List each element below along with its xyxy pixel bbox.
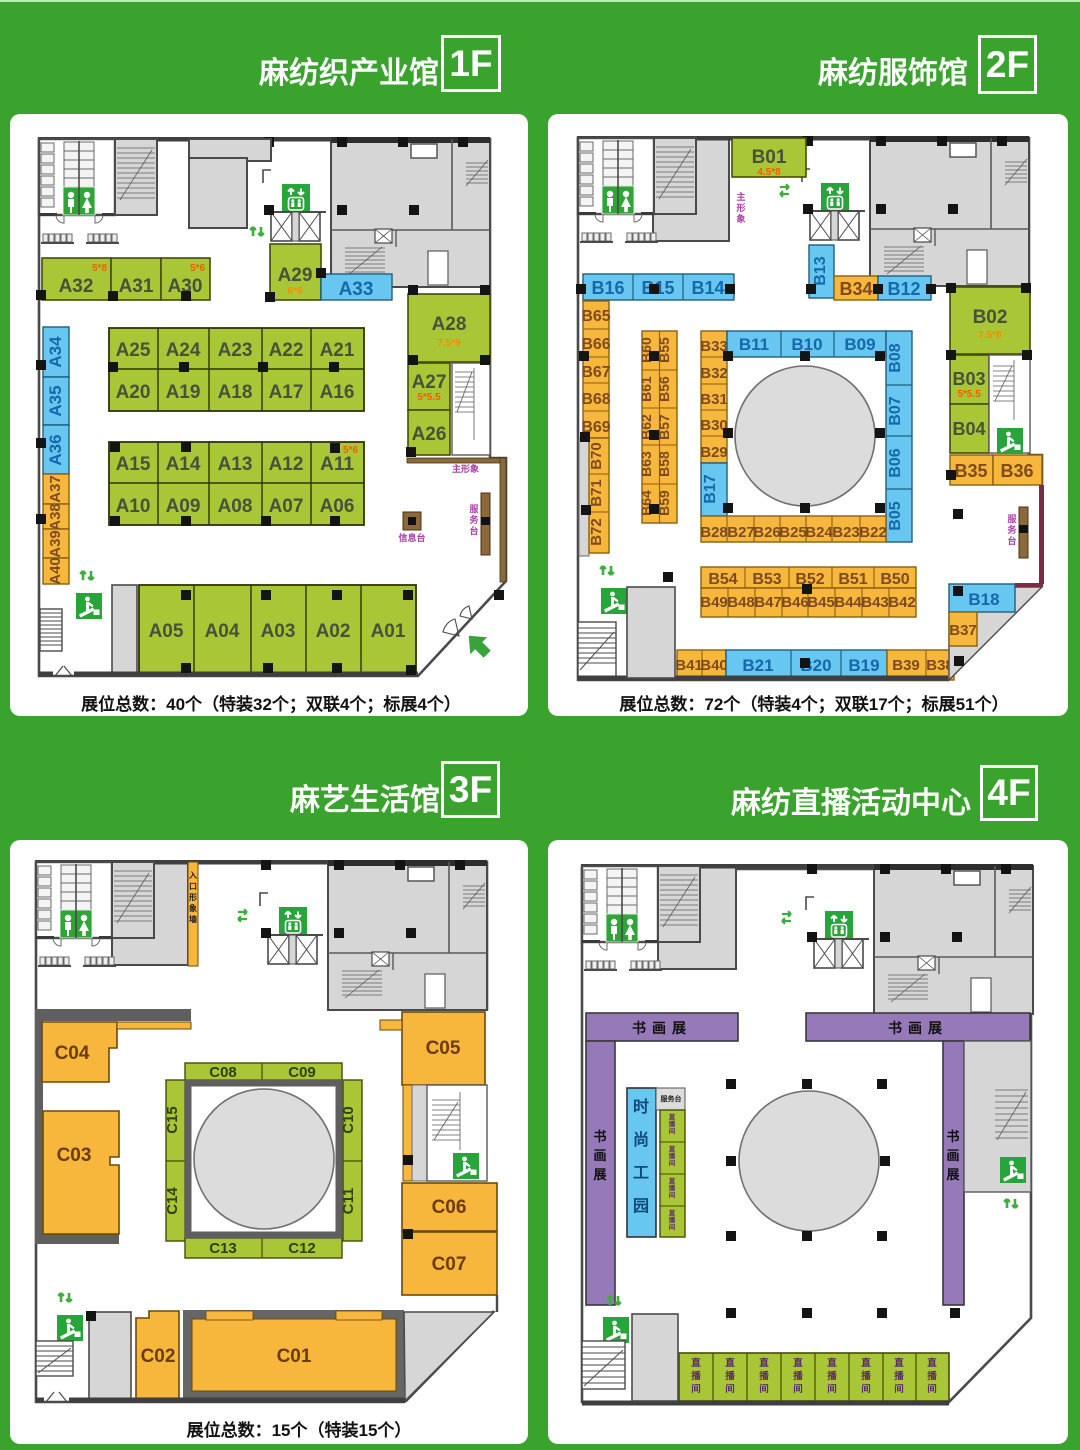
svg-text:A21: A21 <box>320 340 355 361</box>
svg-text:A10: A10 <box>116 496 151 517</box>
svg-text:6*6: 6*6 <box>287 286 302 297</box>
svg-text:间: 间 <box>669 1126 676 1135</box>
svg-text:时: 时 <box>633 1098 649 1116</box>
svg-text:B50: B50 <box>880 571 909 588</box>
svg-text:A25: A25 <box>116 340 151 361</box>
svg-text:A02: A02 <box>316 621 351 642</box>
svg-text:B63: B63 <box>638 451 654 477</box>
svg-text:B25: B25 <box>779 524 807 541</box>
svg-text:C04: C04 <box>55 1043 90 1064</box>
svg-text:A19: A19 <box>166 382 201 403</box>
svg-text:园: 园 <box>633 1197 649 1215</box>
svg-text:播: 播 <box>759 1370 769 1382</box>
svg-text:间: 间 <box>827 1383 837 1395</box>
svg-text:B28: B28 <box>700 524 728 541</box>
svg-text:A32: A32 <box>59 276 94 297</box>
svg-text:展位总数：40个（特装32个；双联4个；标展4个）: 展位总数：40个（特装32个；双联4个；标展4个） <box>81 694 461 714</box>
svg-text:A39: A39 <box>47 530 64 558</box>
svg-text:B48: B48 <box>727 594 755 611</box>
svg-text:A07: A07 <box>269 496 304 517</box>
svg-text:播: 播 <box>669 1183 676 1192</box>
svg-text:C02: C02 <box>141 1346 176 1367</box>
svg-text:C12: C12 <box>288 1240 316 1257</box>
svg-text:C06: C06 <box>432 1197 467 1218</box>
svg-text:B49: B49 <box>700 594 728 611</box>
svg-text:B36: B36 <box>1000 461 1033 481</box>
svg-text:服务台: 服务台 <box>661 1094 682 1103</box>
svg-text:B65: B65 <box>581 308 610 325</box>
svg-text:间: 间 <box>669 1190 676 1199</box>
svg-text:A22: A22 <box>269 340 304 361</box>
svg-text:B43: B43 <box>861 594 889 611</box>
svg-text:直: 直 <box>669 1208 676 1217</box>
svg-text:B72: B72 <box>588 518 605 546</box>
svg-text:C15: C15 <box>164 1106 181 1134</box>
svg-text:A03: A03 <box>261 621 296 642</box>
svg-text:B01: B01 <box>752 147 787 168</box>
svg-text:B71: B71 <box>588 479 605 507</box>
svg-text:B37: B37 <box>949 622 977 639</box>
svg-text:C13: C13 <box>209 1240 237 1257</box>
svg-text:5*5.5: 5*5.5 <box>417 392 441 403</box>
svg-text:A11: A11 <box>320 454 354 475</box>
svg-text:播: 播 <box>669 1119 676 1128</box>
svg-text:C10: C10 <box>340 1106 357 1134</box>
svg-text:A05: A05 <box>149 621 184 642</box>
svg-text:B02: B02 <box>973 307 1008 328</box>
svg-text:展: 展 <box>946 1167 960 1182</box>
svg-text:间: 间 <box>691 1383 701 1395</box>
svg-text:播: 播 <box>827 1370 837 1382</box>
svg-text:B27: B27 <box>727 524 755 541</box>
svg-text:A16: A16 <box>320 382 355 403</box>
svg-text:B53: B53 <box>752 571 781 588</box>
svg-text:墙: 墙 <box>189 914 197 924</box>
svg-text:形: 形 <box>189 892 197 902</box>
svg-text:B34: B34 <box>839 279 872 299</box>
svg-text:象: 象 <box>736 213 745 224</box>
svg-text:A29: A29 <box>278 265 313 286</box>
svg-text:B14: B14 <box>691 278 724 298</box>
svg-text:直: 直 <box>691 1357 701 1369</box>
svg-text:B07: B07 <box>887 396 904 425</box>
svg-text:工: 工 <box>633 1165 649 1182</box>
svg-text:B29: B29 <box>700 444 728 461</box>
svg-text:尚: 尚 <box>633 1130 649 1149</box>
svg-text:C11: C11 <box>340 1188 357 1215</box>
svg-text:A01: A01 <box>371 621 406 642</box>
svg-text:B12: B12 <box>887 279 920 299</box>
svg-text:B04: B04 <box>952 419 985 439</box>
svg-text:播: 播 <box>669 1151 676 1160</box>
svg-text:B41: B41 <box>675 657 703 674</box>
svg-text:间: 间 <box>927 1383 937 1395</box>
svg-text:直: 直 <box>861 1357 871 1369</box>
svg-text:B46: B46 <box>781 594 809 611</box>
svg-text:直: 直 <box>669 1144 676 1153</box>
svg-text:A13: A13 <box>218 454 253 475</box>
svg-text:A27: A27 <box>412 372 447 393</box>
svg-text:A31: A31 <box>119 276 154 297</box>
svg-text:A17: A17 <box>269 382 304 403</box>
svg-text:B08: B08 <box>887 343 904 372</box>
svg-text:B51: B51 <box>838 571 867 588</box>
svg-text:B67: B67 <box>581 364 610 381</box>
svg-text:信息台: 信息台 <box>398 532 425 543</box>
svg-text:播: 播 <box>725 1370 735 1382</box>
svg-text:B44: B44 <box>834 594 862 611</box>
svg-text:形: 形 <box>736 202 745 213</box>
svg-text:B45: B45 <box>807 594 835 611</box>
svg-text:A24: A24 <box>166 340 201 361</box>
svg-text:服: 服 <box>469 504 479 514</box>
svg-text:A33: A33 <box>339 279 374 300</box>
svg-text:间: 间 <box>861 1383 871 1395</box>
svg-text:B21: B21 <box>742 656 773 675</box>
svg-text:B06: B06 <box>887 448 904 477</box>
svg-text:A04: A04 <box>205 621 240 642</box>
svg-text:播: 播 <box>861 1370 871 1382</box>
svg-text:B13: B13 <box>812 256 829 285</box>
svg-text:间: 间 <box>793 1383 803 1395</box>
svg-text:B18: B18 <box>968 590 999 609</box>
svg-text:台: 台 <box>469 525 478 536</box>
svg-text:播: 播 <box>793 1370 803 1382</box>
svg-text:A34: A34 <box>46 336 65 368</box>
svg-text:A28: A28 <box>432 314 467 335</box>
svg-text:务: 务 <box>1007 524 1017 535</box>
svg-text:C01: C01 <box>277 1346 312 1367</box>
svg-text:B61: B61 <box>638 376 654 402</box>
svg-text:展位总数：15个（特装15个）: 展位总数：15个（特装15个） <box>187 1420 412 1440</box>
svg-text:B70: B70 <box>588 442 605 470</box>
svg-text:A23: A23 <box>218 340 253 361</box>
svg-text:间: 间 <box>725 1383 735 1395</box>
svg-text:主形象: 主形象 <box>452 463 479 474</box>
svg-text:B05: B05 <box>887 501 904 530</box>
svg-text:A12: A12 <box>269 454 304 475</box>
svg-text:7.5*9: 7.5*9 <box>437 338 461 349</box>
svg-text:B68: B68 <box>581 391 610 408</box>
svg-text:播: 播 <box>691 1370 701 1382</box>
svg-text:主: 主 <box>736 191 745 202</box>
svg-text:B11: B11 <box>739 335 769 354</box>
svg-text:A38: A38 <box>47 503 64 531</box>
svg-text:B24: B24 <box>805 524 833 541</box>
svg-text:入: 入 <box>188 871 197 880</box>
svg-text:间: 间 <box>759 1383 769 1395</box>
svg-text:间: 间 <box>894 1383 904 1395</box>
svg-text:5*8: 5*8 <box>92 263 107 274</box>
svg-text:展位总数：72个（特装4个；双联17个；标展51个）: 展位总数：72个（特装4个；双联17个；标展51个） <box>619 694 1008 714</box>
svg-text:5*6: 5*6 <box>343 445 358 456</box>
svg-text:5*5.5: 5*5.5 <box>957 389 981 400</box>
svg-text:间: 间 <box>669 1158 676 1167</box>
svg-text:A09: A09 <box>166 496 201 517</box>
svg-text:A40: A40 <box>47 557 64 585</box>
svg-text:A14: A14 <box>166 454 201 475</box>
svg-text:B56: B56 <box>656 376 672 402</box>
svg-text:书: 书 <box>593 1129 606 1144</box>
svg-text:书: 书 <box>946 1129 959 1144</box>
svg-text:直: 直 <box>793 1357 803 1369</box>
svg-text:C07: C07 <box>432 1254 467 1275</box>
svg-text:口: 口 <box>189 882 197 891</box>
svg-text:C05: C05 <box>426 1038 461 1059</box>
svg-text:B09: B09 <box>844 335 875 354</box>
svg-text:B47: B47 <box>754 594 782 611</box>
svg-text:B31: B31 <box>700 391 728 408</box>
svg-text:A26: A26 <box>412 424 447 445</box>
svg-text:A36: A36 <box>46 434 65 465</box>
svg-text:A20: A20 <box>116 382 151 403</box>
svg-text:直: 直 <box>669 1112 676 1121</box>
svg-text:B66: B66 <box>581 336 610 353</box>
svg-text:直: 直 <box>894 1357 904 1369</box>
svg-text:A35: A35 <box>46 385 65 416</box>
svg-text:务: 务 <box>469 514 479 525</box>
svg-text:C08: C08 <box>209 1064 237 1081</box>
svg-text:C14: C14 <box>164 1187 181 1215</box>
svg-text:5*6: 5*6 <box>190 263 205 274</box>
svg-text:B23: B23 <box>832 524 860 541</box>
svg-text:B58: B58 <box>656 451 672 477</box>
svg-text:B22: B22 <box>859 524 887 541</box>
svg-text:播: 播 <box>669 1215 676 1224</box>
svg-text:直: 直 <box>669 1176 676 1185</box>
svg-text:象: 象 <box>189 903 197 913</box>
svg-text:B19: B19 <box>848 656 879 675</box>
svg-text:播: 播 <box>894 1370 904 1382</box>
svg-text:A08: A08 <box>218 496 253 517</box>
svg-text:展: 展 <box>593 1167 607 1182</box>
svg-text:7.5*8: 7.5*8 <box>978 330 1002 341</box>
svg-text:B26: B26 <box>753 524 781 541</box>
svg-text:B32: B32 <box>700 365 728 382</box>
svg-text:直: 直 <box>827 1357 837 1369</box>
svg-text:B40: B40 <box>700 657 728 674</box>
svg-text:B54: B54 <box>708 571 737 588</box>
svg-text:画: 画 <box>593 1148 606 1163</box>
svg-text:台: 台 <box>1007 535 1016 546</box>
svg-text:直: 直 <box>759 1357 769 1369</box>
svg-text:B16: B16 <box>591 278 624 298</box>
svg-text:A06: A06 <box>320 496 355 517</box>
svg-text:画: 画 <box>946 1148 959 1163</box>
svg-text:服: 服 <box>1007 514 1017 524</box>
svg-text:4.5*8: 4.5*8 <box>757 167 781 178</box>
svg-text:B35: B35 <box>954 461 987 481</box>
svg-text:A37: A37 <box>47 475 64 503</box>
svg-text:播: 播 <box>927 1370 937 1382</box>
svg-text:A18: A18 <box>218 382 253 403</box>
svg-text:直: 直 <box>725 1357 735 1369</box>
svg-text:B17: B17 <box>702 474 719 503</box>
svg-text:间: 间 <box>669 1222 676 1231</box>
svg-text:B39: B39 <box>892 657 920 674</box>
svg-text:B42: B42 <box>888 594 916 611</box>
svg-text:书画展: 书画展 <box>888 1020 948 1036</box>
svg-text:C09: C09 <box>288 1064 316 1081</box>
svg-text:B03: B03 <box>952 369 985 389</box>
svg-text:直: 直 <box>927 1357 937 1369</box>
svg-text:C03: C03 <box>57 1145 92 1166</box>
svg-text:A15: A15 <box>116 454 151 475</box>
svg-text:书画展: 书画展 <box>632 1020 692 1036</box>
